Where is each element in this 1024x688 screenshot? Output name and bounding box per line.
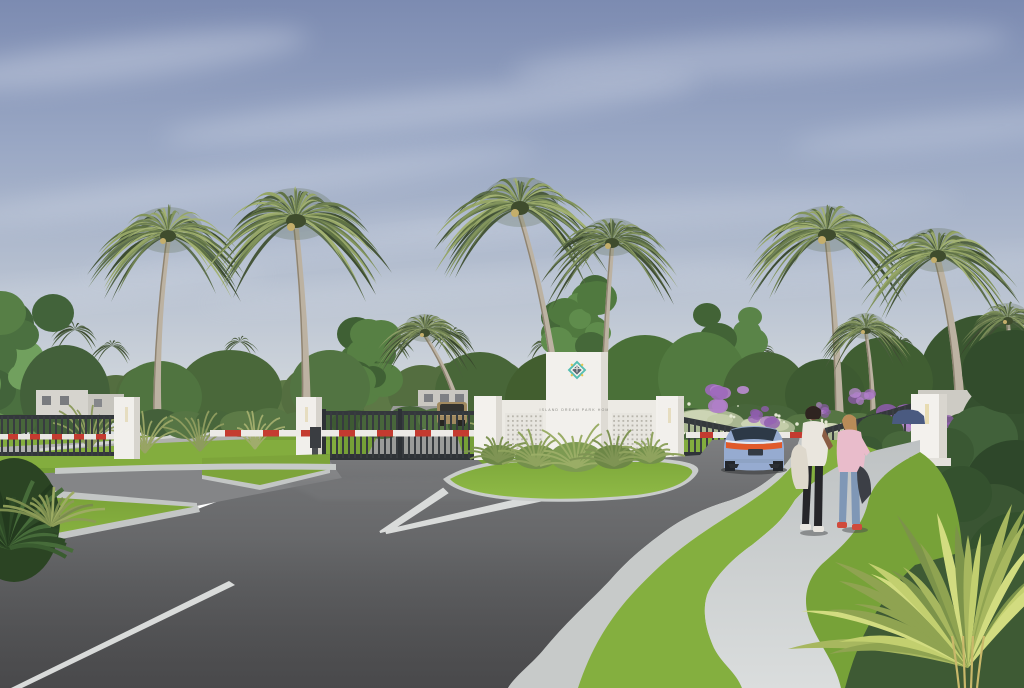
svg-text:ISLAND DREAM PARK HOMES: ISLAND DREAM PARK HOMES [540,408,617,412]
